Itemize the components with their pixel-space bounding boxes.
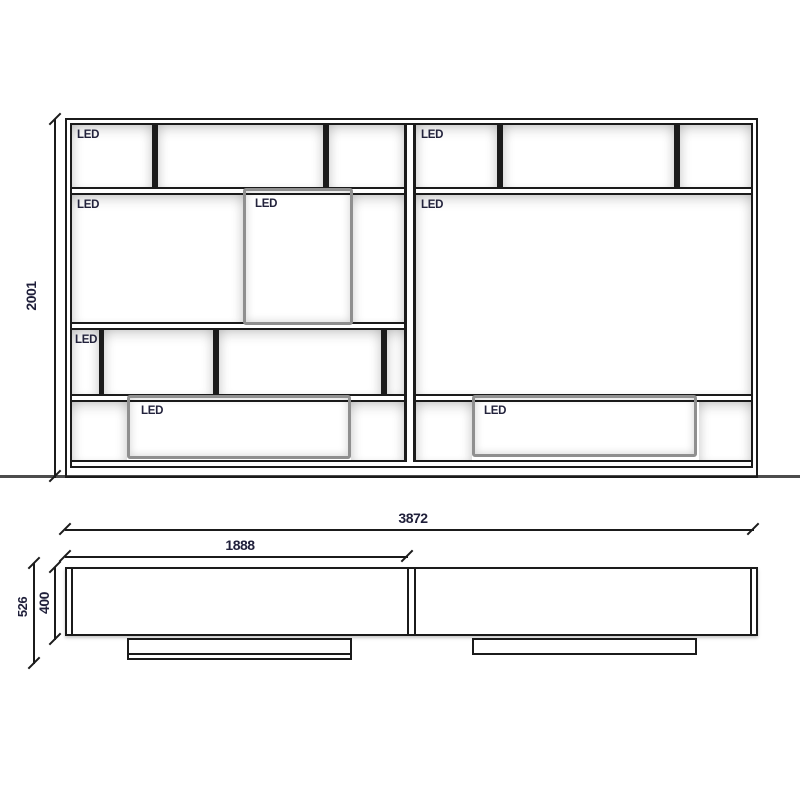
compartment-row3-mid [104,330,213,394]
dimension-line-height [54,119,56,478]
led-label: LED [77,200,99,212]
compartment-row3-narrow [387,330,404,394]
plan-right-end-panel-line [750,569,752,634]
compartment-right-top-right [680,125,751,187]
dimension-left-width-value: 1888 [205,538,275,552]
dimension-height-value: 2001 [24,278,38,314]
technical-drawing-canvas: LED LED LED LED LED LED LED [0,0,800,800]
compartment-bottom-mid [351,402,404,460]
partition [213,330,219,394]
dimension-cabinet-depth-value: 400 [37,585,51,621]
led-light-box-bottom-right: LED [472,395,697,457]
shelf-row2-left [72,322,404,330]
partition [99,330,104,394]
plan-center-divider [407,569,416,634]
dimension-line-total-width [65,529,754,531]
dimension-line-left-width [65,556,408,558]
led-label: LED [141,406,163,418]
led-light-box-bottom-left: LED [127,395,351,459]
dimension-line-cabinet-depth [54,567,56,640]
led-label: LED [421,200,443,212]
led-label: LED [77,130,99,142]
led-label: LED [421,130,443,142]
led-label: LED [75,335,97,347]
compartment-row3-wide [219,330,381,394]
compartment-right-top-left: LED [416,125,497,187]
dimension-line-total-depth [33,563,35,664]
plan-left-end-panel-line [71,569,73,634]
plan-led-box-right [472,638,697,655]
dimension-total-width-value: 3872 [378,511,448,525]
center-divider [404,125,416,462]
compartment-row2-narrow [352,195,404,322]
partition [497,125,503,187]
compartment-right-bottom-left [416,402,472,460]
partition [323,125,329,187]
compartment-top-middle [158,125,323,187]
compartment-row2-large: LED [72,195,243,322]
compartment-row3-small: LED [72,330,99,394]
partition [674,125,680,187]
compartment-top-right [329,125,404,187]
compartment-right-top-middle [503,125,674,187]
plan-led-box-left-inner-line [129,653,350,655]
partition [381,330,387,394]
led-label: LED [255,199,277,211]
led-light-box-middle: LED [243,188,353,325]
floor-line [0,475,800,478]
compartment-right-open: LED [416,195,751,394]
compartment-bottom-left [72,402,127,460]
compartment-right-bottom-right [699,402,751,460]
led-label: LED [484,406,506,418]
compartment-top-left: LED [72,125,152,187]
dimension-total-depth-value: 526 [16,589,30,625]
partition [152,125,158,187]
plan-led-box-left [127,638,352,660]
